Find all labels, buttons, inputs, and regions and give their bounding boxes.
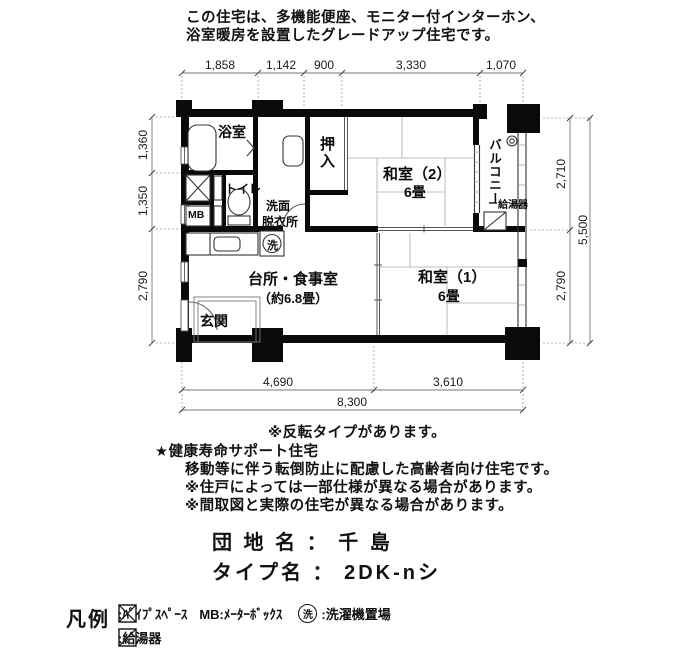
dim-bottom-1: 4,690 [248, 375, 308, 389]
dim-top-1: 1,858 [190, 58, 250, 72]
pillar [505, 327, 540, 360]
legend-title: 凡例 [66, 603, 110, 632]
kitchen-sink-icon [214, 237, 240, 251]
room-label-kitchen: 台所・食事室 [248, 268, 338, 289]
room-label-bath: 浴室 [218, 122, 246, 142]
legend-row-1: :ﾊﾟｲﾌﾟｽﾍﾟｰｽ MB:ﾒｰﾀｰﾎﾞｯｸｽ 洗 :洗濯機置場 [118, 604, 391, 623]
fixtures [186, 125, 517, 342]
room-label-washroom-2: 脱衣所 [262, 213, 298, 230]
room-label-entrance: 玄関 [200, 311, 228, 331]
dim-right-total: 5,500 [576, 200, 590, 260]
dim-bottom-2: 3,610 [418, 375, 478, 389]
bathtub-icon [188, 125, 216, 171]
room-label-mb: MB [188, 209, 204, 221]
pillar [252, 328, 283, 362]
dim-top-4: 3,330 [381, 58, 441, 72]
dim-left-1: 1,360 [136, 115, 150, 175]
room-label-jp-room2: 和室（2） [383, 163, 451, 184]
pillar [473, 104, 487, 119]
dim-left-2: 1,350 [136, 171, 150, 231]
estate-name-line: 団 地 名 ： 千 島 [212, 526, 393, 555]
room-label-washroom-1: 洗面 [266, 197, 290, 214]
washer-legend-icon: 洗 [298, 604, 317, 623]
room-label-closet: 押入 [316, 136, 337, 170]
legend-mb-label: MB:ﾒｰﾀｰﾎﾞｯｸｽ [199, 604, 282, 623]
water-heater-legend-icon [118, 628, 137, 647]
room-label-water-heater: 給湯器 [498, 196, 528, 211]
dim-bottom-total: 8,300 [322, 395, 382, 409]
legend-washer-label: :洗濯機置場 [321, 604, 390, 623]
pillar [176, 328, 192, 362]
room-label-kitchen-size: （約6.8畳） [258, 288, 328, 307]
room-label-jp-room1: 和室（1） [418, 266, 486, 287]
room-label-jp-room1-size: 6畳 [438, 286, 460, 306]
pillar [176, 100, 192, 117]
pipe-space-legend-icon [118, 604, 137, 623]
estate-type-line: タイプ名 ： 2DK-nシ [212, 556, 441, 585]
legend-row-2: :給湯器 [118, 628, 161, 647]
dim-right-1: 2,710 [554, 144, 568, 204]
room-label-toilet: トイレ [225, 180, 261, 197]
hose-bib-icon [507, 136, 517, 146]
bath-door-icon [247, 140, 254, 156]
room-label-jp-room2-size: 6畳 [404, 182, 426, 202]
pillar [507, 104, 540, 133]
entrance-door-gap [181, 300, 188, 331]
dim-top-3: 900 [294, 58, 354, 72]
note-plan-diff: ※間取図と実際の住宅が異なる場合があります。 [185, 494, 513, 515]
dim-right-2: 2,790 [554, 256, 568, 316]
note-reverse-type: ※反転タイプがあります。 [268, 421, 446, 442]
washbasin-icon [283, 136, 303, 166]
dim-left-3: 2,790 [136, 256, 150, 316]
window-latch [518, 259, 527, 267]
floor-plan-page: { "header": { "line1": "この住宅は、多機能便座、モニター… [0, 0, 700, 650]
dim-top-5: 1,070 [471, 58, 531, 72]
header-line2: 浴室暖房を設置したグレードアップ住宅です。 [186, 24, 500, 45]
washer-space-char: 洗 [267, 237, 278, 253]
